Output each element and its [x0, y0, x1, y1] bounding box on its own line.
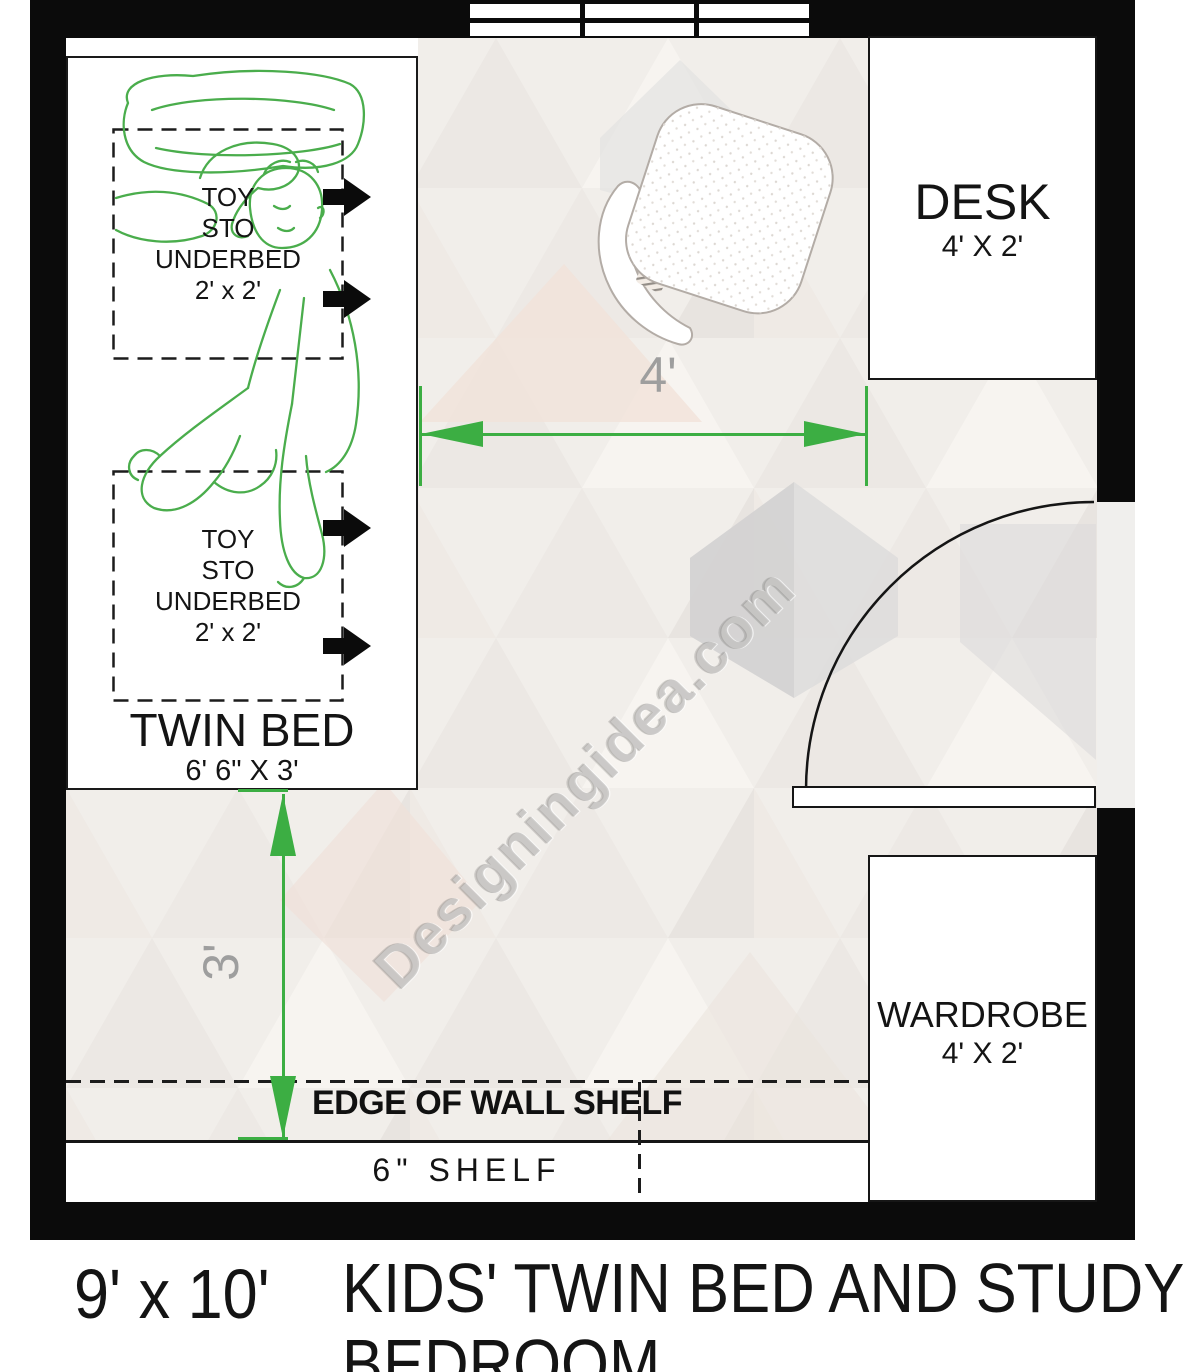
twin-bed: TOY STO UNDERBED 2' x 2' TOY STO UNDERBE… — [66, 56, 418, 790]
twin-bed-size: 6' 6" X 3' — [68, 755, 416, 788]
window-pane — [699, 23, 809, 37]
bed-headboard-gap — [66, 38, 418, 58]
dim-3ft-arrowhead-bottom — [270, 1076, 296, 1138]
wardrobe-label: WARDROBE — [870, 995, 1095, 1035]
desk-size: 4' X 2' — [870, 228, 1095, 266]
wall-bottom — [30, 1202, 1135, 1240]
toy-storage-line: UNDERBED — [155, 244, 301, 275]
door-swing-arc — [780, 455, 1110, 805]
door-leaf — [792, 786, 1096, 808]
toy-storage-line: STO — [202, 213, 255, 244]
pull-out-arrow-icon — [323, 507, 372, 549]
shelf-label: 6" SHELF — [372, 1152, 561, 1188]
desk-chair-drawing — [580, 100, 850, 350]
window-pane — [585, 4, 695, 18]
wall-left — [30, 0, 66, 1240]
pull-out-arrow-icon — [323, 176, 372, 218]
toy-storage-label: TOY STO UNDERBED 2' x 2' — [112, 470, 344, 702]
pull-out-arrow-icon — [323, 278, 372, 320]
wardrobe: WARDROBE 4' X 2' — [868, 855, 1097, 1202]
toy-storage-label: TOY STO UNDERBED 2' x 2' — [112, 128, 344, 360]
toy-storage-line: UNDERBED — [155, 586, 301, 617]
dim-4ft-label: 4' — [598, 346, 718, 404]
window-pane — [699, 4, 809, 18]
wardrobe-size: 4' X 2' — [870, 1035, 1095, 1073]
wall-right-lower — [1097, 808, 1135, 1240]
window — [466, 0, 813, 40]
shelf-edge-label: EDGE OF WALL SHELF — [312, 1084, 682, 1123]
caption-title: KIDS' TWIN BED AND STUDY BEDROOM — [342, 1250, 1184, 1372]
floor-plan: Designingidea.com 6" SHELF EDGE OF WALL … — [0, 0, 1200, 1372]
twin-bed-label: TWIN BED — [68, 703, 416, 757]
window-pane — [470, 4, 580, 18]
pull-out-arrow-icon — [323, 625, 372, 667]
window-pane — [585, 23, 695, 37]
toy-storage-line: TOY — [202, 524, 255, 555]
dim-3ft-arrowhead-top — [270, 794, 296, 856]
wall-right-upper — [1097, 0, 1135, 502]
dim-4ft-arrowhead-left — [421, 421, 483, 447]
dim-4ft-arrowhead-right — [804, 421, 866, 447]
shelf-edge-dashed-line — [66, 1080, 868, 1083]
caption-title-line1: KIDS' TWIN BED AND STUDY — [342, 1250, 1184, 1326]
dim-4ft-line — [421, 433, 866, 436]
window-pane — [470, 23, 580, 37]
toy-storage-line: 2' x 2' — [195, 275, 261, 306]
toy-storage-line: STO — [202, 555, 255, 586]
dim-3ft-label: 3' — [192, 912, 252, 1012]
caption-room-size: 9' x 10' — [74, 1254, 270, 1334]
caption-title-line2: BEDROOM — [342, 1326, 1184, 1372]
desk-label: DESK — [870, 176, 1095, 228]
dim-3ft-tick-top — [238, 789, 288, 792]
toy-storage-line: TOY — [202, 182, 255, 213]
desk: DESK 4' X 2' — [868, 36, 1097, 380]
toy-storage-line: 2' x 2' — [195, 617, 261, 648]
shelf-band: 6" SHELF — [66, 1140, 868, 1202]
